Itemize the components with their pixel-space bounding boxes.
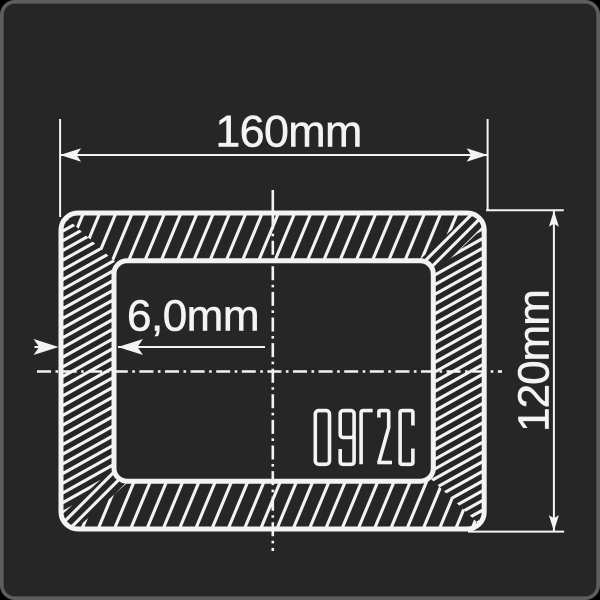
svg-text:120mm: 120mm (510, 290, 559, 432)
svg-text:160mm: 160mm (215, 107, 361, 157)
svg-text:6,0mm: 6,0mm (127, 292, 259, 341)
